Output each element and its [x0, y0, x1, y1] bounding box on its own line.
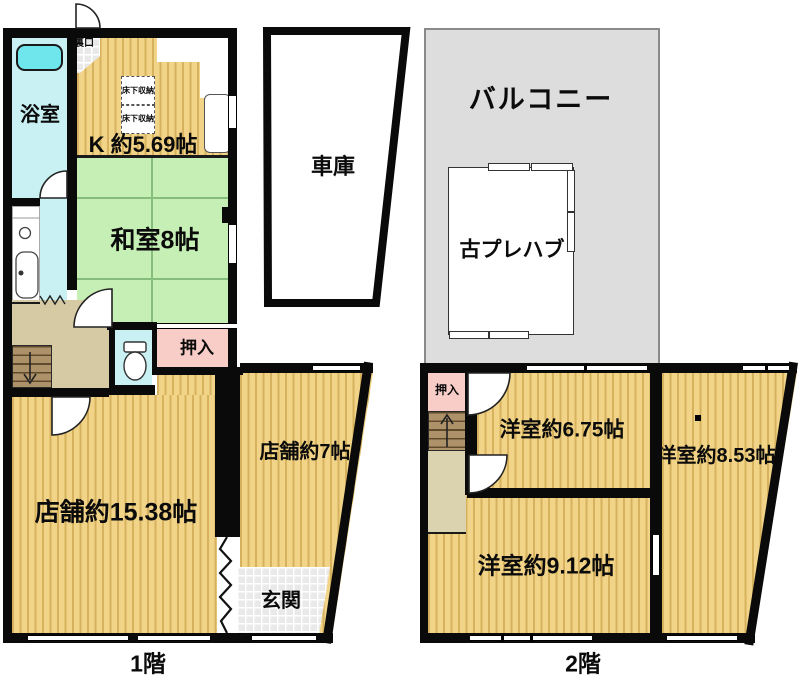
window	[28, 635, 128, 641]
label-closet-2f: 押入	[435, 384, 459, 396]
window-mullion	[584, 364, 587, 372]
wall	[109, 385, 155, 395]
label-closet-1f: 押入	[180, 340, 214, 357]
caption-floor-2: 2階	[565, 653, 601, 676]
prefab-window	[567, 212, 575, 252]
wall	[3, 388, 109, 397]
label-prefab: 古プレハブ	[460, 240, 565, 261]
wall	[650, 368, 662, 643]
shop-divider-gap	[217, 537, 237, 635]
room-washroom-corridor	[40, 198, 67, 305]
label-bathroom: 浴室	[20, 105, 60, 125]
window-mullion	[501, 634, 504, 642]
prefab-window	[488, 163, 530, 171]
prefab-window	[567, 170, 575, 212]
stairs-1f	[12, 345, 52, 388]
pillar-mark	[695, 415, 701, 421]
label-garage: 車庫	[311, 156, 355, 178]
wall	[467, 488, 662, 498]
room-toilet	[115, 328, 152, 385]
wall	[3, 198, 40, 206]
label-western-912: 洋室約9.12帖	[478, 555, 615, 578]
wall	[228, 28, 237, 373]
wall	[3, 28, 12, 643]
window	[313, 365, 360, 371]
stairs-2f	[428, 411, 466, 451]
bathtub	[16, 44, 63, 71]
label-western-853: 洋室約8.53帖	[657, 446, 776, 466]
window	[138, 635, 210, 641]
sliding-door	[652, 535, 660, 575]
wall	[3, 28, 237, 38]
label-western-675: 洋室約6.75帖	[500, 420, 625, 441]
corridor-2f	[428, 451, 466, 533]
wall	[67, 38, 77, 290]
window	[667, 635, 737, 641]
label-kitchen: K 約5.69帖	[89, 134, 198, 156]
room-western-853	[662, 373, 797, 643]
label-entrance: 玄関	[261, 591, 301, 611]
label-underfloor-storage: 床下収納	[122, 87, 154, 95]
window	[252, 635, 316, 641]
label-back-door: 裏口	[74, 39, 94, 49]
label-shop-small: 店舗約7帖	[259, 442, 350, 462]
prefab-window	[449, 331, 489, 339]
window-mullion	[530, 634, 533, 642]
wall-thin	[12, 302, 40, 304]
window-mullion	[765, 364, 768, 372]
wall-stub	[222, 207, 237, 223]
room-washroom	[12, 206, 40, 303]
prefab-window	[489, 331, 529, 339]
door-arc-backdoor	[76, 4, 100, 28]
sliding-door	[157, 323, 237, 329]
wall	[420, 363, 428, 643]
wall	[152, 330, 157, 372]
wall	[465, 368, 477, 495]
window	[228, 96, 237, 128]
wall-partition	[215, 367, 240, 537]
label-japanese-room: 和室8帖	[111, 229, 200, 254]
caption-floor-1: 1階	[130, 653, 166, 676]
window	[527, 365, 647, 371]
label-balcony: バルコニー	[469, 87, 613, 114]
wall	[107, 322, 157, 330]
label-underfloor-storage: 床下収納	[122, 115, 154, 123]
window	[228, 225, 237, 263]
wall	[109, 322, 115, 392]
kitchen-counter-area	[200, 38, 228, 98]
kitchen-sink-counter	[204, 94, 231, 153]
label-shop-large: 店舗約15.38帖	[35, 501, 198, 526]
floor-plan: 浴室 裏口 K 約5.69帖 床下収納 床下収納 和室8帖 押入 店舗約15.3…	[0, 0, 800, 683]
wall-thin	[428, 532, 466, 534]
